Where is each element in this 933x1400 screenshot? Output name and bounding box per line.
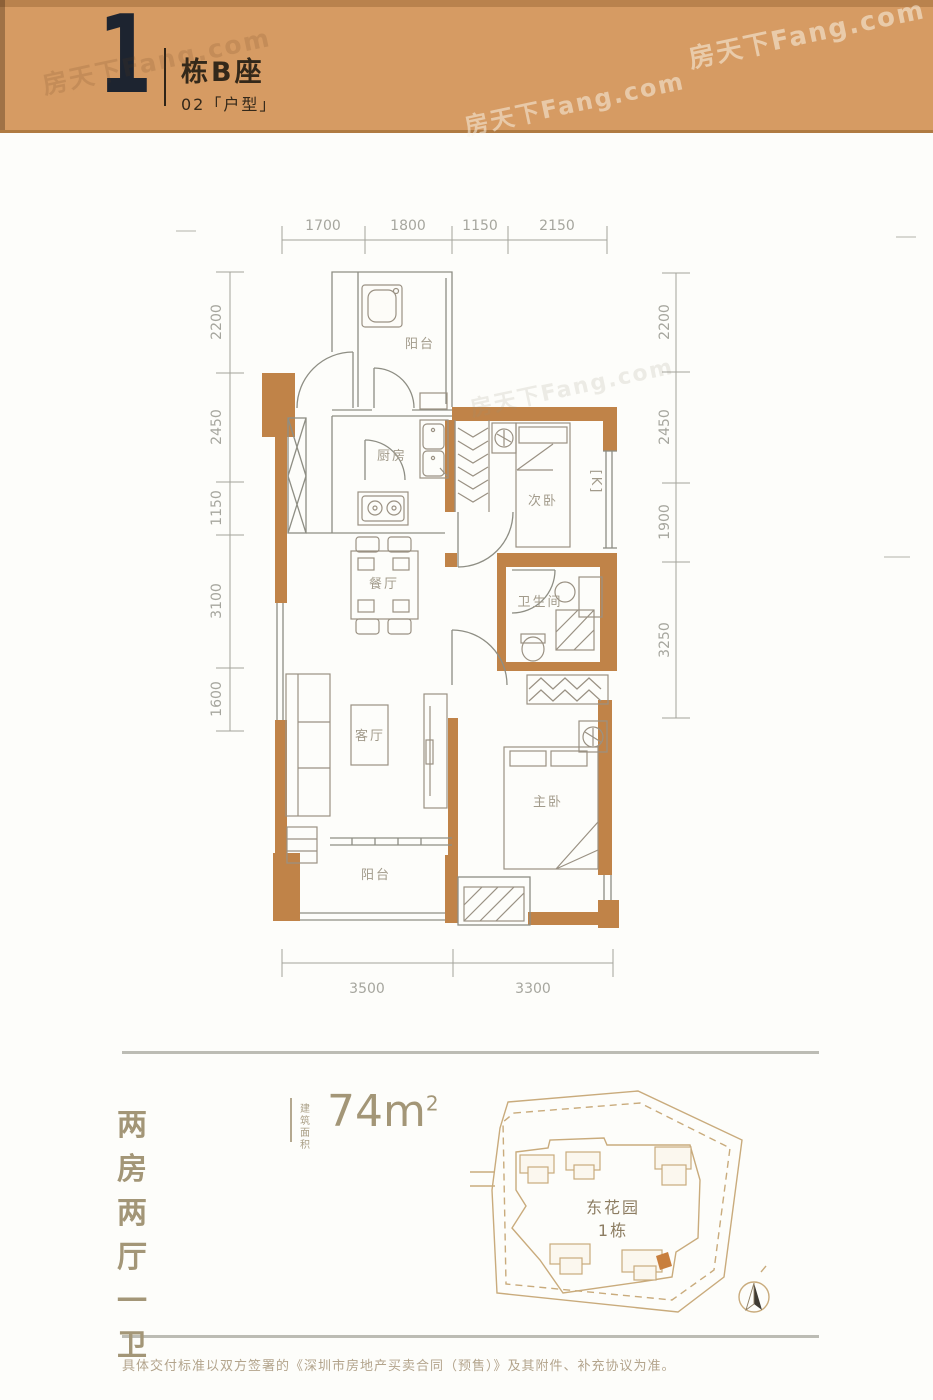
area-value: 74m2 [327, 1086, 439, 1137]
label-bedroom2: 次卧 [528, 493, 558, 509]
dim-bottom-0: 3500 [349, 981, 385, 997]
ac-bracket-mark: [K] [588, 470, 603, 495]
dim-bottom-1: 3300 [515, 981, 551, 997]
ac-platform [464, 887, 524, 921]
separator-top [122, 1051, 819, 1054]
closet-bedroom2 [455, 420, 489, 512]
summary-divider [290, 1098, 292, 1142]
dim-right-2: 1900 [657, 504, 673, 540]
label-master: 主卧 [533, 795, 563, 810]
label-dining: 餐厅 [369, 576, 399, 592]
dim-top-3: 2150 [539, 218, 575, 234]
dim-left-1: 2450 [209, 409, 225, 445]
page: 1 栋B座 02「户型」 房天下Fang.com 房天下Fang.com 房天下… [0, 0, 933, 1400]
dim-right-1: 2450 [657, 409, 673, 445]
bed-bedroom2 [516, 423, 570, 547]
stove [358, 492, 408, 525]
label-balcony-top: 阳台 [405, 337, 435, 352]
structure-lines [277, 272, 617, 925]
label-bath: 卫生间 [517, 595, 562, 610]
dim-right-0: 2200 [657, 304, 673, 340]
dim-right-3: 3250 [657, 622, 673, 658]
dim-top-0: 1700 [305, 218, 341, 234]
area-exponent: 2 [426, 1091, 439, 1115]
fan-bedroom2 [492, 423, 516, 453]
washing-machine [362, 285, 402, 327]
wardrobe-master [527, 675, 608, 704]
label-balcony-bottom: 阳台 [361, 868, 391, 883]
sofa [286, 674, 330, 816]
layout-type: 两房两厅一卫 [117, 1100, 150, 1364]
tv-cabinet [424, 694, 447, 808]
compass-icon [739, 1266, 769, 1312]
bathroom-fixtures [521, 577, 602, 661]
area-label: 建筑 面积 [300, 1104, 310, 1152]
dim-left-4: 1600 [209, 681, 225, 717]
site-title-line1: 东花园 [586, 1198, 640, 1217]
dim-left-0: 2200 [209, 304, 225, 340]
disclaimer-text: 具体交付标准以双方签署的《深圳市房地产买卖合同（预售）》及其附件、补充协议为准。 [122, 1355, 676, 1374]
area-label-line1: 建筑 [300, 1104, 310, 1128]
site-plan: 东花园 1栋 [470, 1091, 769, 1312]
dim-top-2: 1150 [462, 218, 498, 234]
site-title-line2: 1栋 [598, 1221, 628, 1240]
dim-left-2: 1150 [209, 490, 225, 526]
kitchen-sink [420, 393, 448, 478]
separator-bottom [122, 1335, 819, 1338]
label-kitchen: 厨房 [377, 448, 407, 464]
dim-top-1: 1800 [390, 218, 426, 234]
label-living: 客厅 [355, 728, 385, 744]
dim-left-3: 3100 [209, 583, 225, 619]
area-label-line2: 面积 [300, 1128, 310, 1152]
